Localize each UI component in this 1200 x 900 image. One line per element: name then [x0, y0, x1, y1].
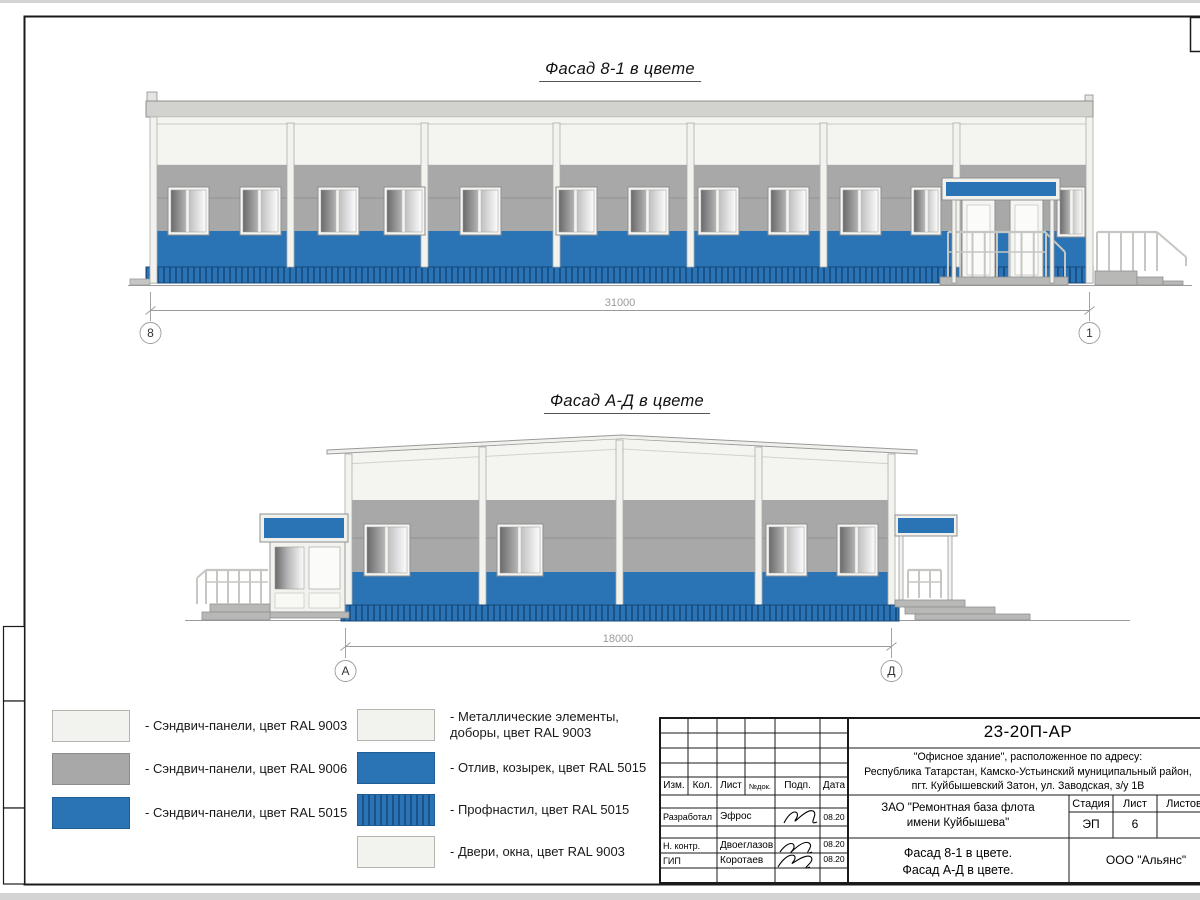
door-panel [967, 205, 990, 275]
railing-slope [1157, 232, 1186, 257]
window-mullion [518, 527, 521, 573]
legend-item: - Сэндвич-панели, цвет RAL 5015 [52, 797, 347, 829]
organization-name: ООО "Альянс" [1071, 853, 1200, 867]
axis-bubble-a: А [341, 664, 349, 678]
project-address: "Офисное здание", расположенное по адрес… [850, 750, 1200, 794]
dimension-label: 18000 [603, 633, 634, 645]
swatch-ral5015 [52, 797, 130, 829]
window-mullion [858, 190, 861, 232]
row-role: Н. контр. [663, 841, 717, 851]
window-mullion [385, 527, 388, 573]
canopy-post [899, 536, 903, 600]
row-name: Коротаев [720, 855, 776, 866]
legend-item: - Профнастил, цвет RAL 5015 [357, 794, 629, 826]
corner-stamp-box [1191, 18, 1200, 52]
signature-dvoeglazov [780, 842, 812, 853]
stair-step [905, 607, 995, 614]
window-mullion [336, 190, 339, 232]
col-kol: Кол. [688, 780, 717, 791]
canopy-post [948, 536, 952, 600]
facade2-dimension: 18000 А Д [335, 628, 902, 682]
window-mullion [716, 190, 719, 232]
stair-step [1095, 271, 1137, 285]
signature-korotaev [778, 855, 812, 868]
stage-value: ЭП [1069, 817, 1113, 831]
col-izm: Изм. [660, 780, 688, 791]
sheet-title-line: Фасад А-Д в цвете. [850, 862, 1066, 879]
stair-step [1137, 277, 1163, 285]
window-mullion [186, 190, 189, 232]
side-stamp-box [4, 808, 25, 884]
railing-slope [197, 570, 206, 578]
legend-label: - Сэндвич-панели, цвет RAL 9006 [145, 761, 347, 777]
canopy-blue [898, 518, 954, 533]
client-line: ЗАО "Ремонтная база флота [850, 801, 1066, 816]
ground-step-left [130, 279, 150, 285]
side-stamp-box [4, 701, 25, 808]
swatch-metal-ral9003 [357, 709, 435, 741]
canopy-post [952, 200, 956, 283]
vestibule-door-glass [309, 547, 340, 589]
facade-a-d-drawing [185, 435, 1130, 621]
row-name: Эфрос [720, 811, 774, 822]
swatch-ral9003 [52, 710, 130, 742]
sheet-title-line: Фасад 8-1 в цвете. [850, 845, 1066, 862]
side-stamp-box [4, 627, 25, 702]
legend-item: - Сэндвич-панели, цвет RAL 9003 [52, 710, 347, 742]
canopy-blue [946, 182, 1056, 196]
sheet-title: Фасад 8-1 в цвете. Фасад А-Д в цвете. [850, 845, 1066, 879]
stair-step [915, 614, 1030, 620]
corner-pilaster [1086, 117, 1093, 283]
sheets-label: Листов [1157, 798, 1200, 810]
legend-item: - Двери, окна, цвет RAL 9003 [357, 836, 625, 868]
legend-item: - Отлив, козырек, цвет RAL 5015 [357, 752, 646, 784]
stage-label: Стадия [1069, 798, 1113, 810]
legend-label: - Отлив, козырек, цвет RAL 5015 [450, 760, 646, 776]
window-mullion [786, 190, 789, 232]
pilaster [820, 123, 827, 267]
window-mullion [478, 190, 481, 232]
sheet-value: 6 [1113, 817, 1157, 831]
vestibule-panel [275, 593, 304, 608]
row-name: Двоеглазов [720, 840, 776, 851]
pilaster [687, 123, 694, 267]
window-mullion [646, 190, 649, 232]
signature-efros [784, 811, 817, 823]
col-data: Дата [820, 780, 848, 791]
facade2-title-text: Фасад А-Д в цвете [544, 392, 710, 414]
vestibule-panel [309, 593, 340, 608]
canopy-post [1050, 200, 1054, 283]
swatch-otliv-ral5015 [357, 752, 435, 784]
row-date: 08.20 [820, 839, 848, 849]
pilaster [479, 447, 486, 605]
pilaster [287, 123, 294, 267]
legend-item: - Сэндвич-панели, цвет RAL 9006 [52, 753, 347, 785]
facade1-title-text: Фасад 8-1 в цвете [539, 60, 701, 82]
legend-item: - Металлические элементы, доборы, цвет R… [357, 709, 662, 741]
legend-label: - Сэндвич-панели, цвет RAL 5015 [145, 805, 347, 821]
row-date: 08.20 [820, 812, 848, 822]
roof-parapet [146, 101, 1093, 117]
window-mullion [402, 190, 405, 232]
legend-label: - Двери, окна, цвет RAL 9003 [450, 844, 625, 860]
window-mullion [855, 527, 858, 573]
vestibule-glazing [275, 547, 304, 589]
stair-step [210, 604, 270, 612]
axis-bubble-1: 1 [1086, 326, 1093, 340]
legend-label: - Сэндвич-панели, цвет RAL 9003 [145, 718, 347, 734]
window-mullion [1070, 190, 1073, 234]
col-list: Лист [717, 780, 745, 791]
client-line: имени Куйбышева" [850, 816, 1066, 831]
address-line: Республика Татарстан, Камско-Устьинский … [850, 765, 1200, 780]
facade1-dimension: 31000 8 1 [140, 292, 1100, 344]
axis-bubble-d: Д [887, 664, 895, 678]
plinth-profiled-sheet [341, 605, 899, 621]
col-ndok: №док. [745, 782, 775, 791]
legend-label: - Металлические элементы, доборы, цвет R… [450, 709, 662, 741]
row-date: 08.20 [820, 854, 848, 864]
client-name: ЗАО "Ремонтная база флота имени Куйбышев… [850, 801, 1066, 831]
window-mullion [784, 527, 787, 573]
window-mullion [925, 190, 928, 232]
facade2-title: Фасад А-Д в цвете [544, 392, 710, 414]
facade-8-1-drawing [128, 92, 1192, 286]
window-mullion [574, 190, 577, 232]
window-mullion [258, 190, 261, 232]
dimension-label: 31000 [605, 297, 636, 309]
vestibule-base [266, 612, 349, 618]
swatch-doors-ral9003 [357, 836, 435, 868]
corner-pilaster [888, 454, 895, 605]
address-line: "Офисное здание", расположенное по адрес… [850, 750, 1200, 765]
doc-number: 23-20П-АР [848, 722, 1200, 742]
pilaster [616, 440, 623, 605]
col-podp: Подп. [775, 780, 820, 791]
axis-bubble-8: 8 [147, 326, 154, 340]
swatch-ral9006 [52, 753, 130, 785]
sheet-label: Лист [1113, 798, 1157, 810]
legend-label: - Профнастил, цвет RAL 5015 [450, 802, 629, 818]
stair-step [1163, 281, 1183, 285]
swatch-profnastil-ral5015 [357, 794, 435, 826]
corner-pilaster [150, 117, 157, 283]
canopy-blue [264, 518, 344, 538]
address-line: пгт. Куйбышевский Затон, ул. Заводская, … [850, 779, 1200, 794]
stair-step [202, 612, 270, 620]
stair-step [940, 277, 1068, 285]
row-role: ГИП [663, 856, 717, 866]
stair-step [895, 600, 965, 607]
row-role: Разработал [663, 812, 717, 822]
signatures [778, 811, 817, 868]
pilaster [755, 447, 762, 605]
facade1-title: Фасад 8-1 в цвете [539, 60, 701, 82]
